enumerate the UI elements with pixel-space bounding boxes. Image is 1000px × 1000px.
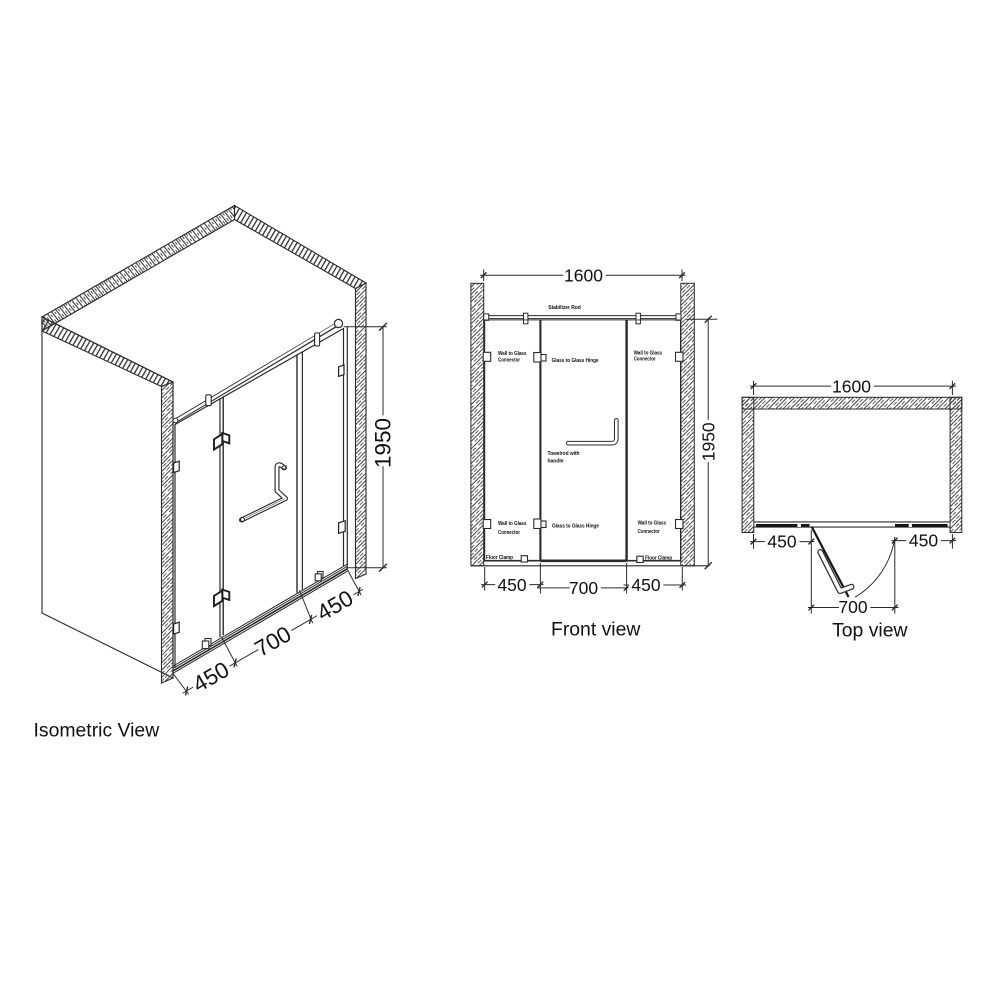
svg-text:Stabilizer Rod: Stabilizer Rod: [548, 305, 581, 311]
svg-text:Isometric View: Isometric View: [34, 720, 161, 742]
svg-text:Connector: Connector: [498, 530, 521, 536]
svg-text:450: 450: [497, 575, 526, 595]
svg-text:Top view: Top view: [832, 620, 908, 642]
svg-text:Floor Clamp: Floor Clamp: [645, 556, 673, 562]
svg-text:1600: 1600: [832, 376, 871, 396]
svg-text:Glass to Glass Hinge: Glass to Glass Hinge: [552, 358, 599, 364]
svg-text:Connector: Connector: [638, 529, 661, 535]
svg-text:Front view: Front view: [551, 619, 641, 641]
svg-text:450: 450: [909, 531, 938, 551]
svg-text:Towelrod with: Towelrod with: [548, 451, 580, 457]
svg-text:1600: 1600: [564, 265, 603, 285]
svg-text:Connector: Connector: [634, 357, 657, 363]
svg-text:Glass to Glass Hinge: Glass to Glass Hinge: [552, 524, 599, 530]
svg-text:450: 450: [767, 532, 796, 552]
svg-text:700: 700: [838, 597, 867, 617]
svg-text:1950: 1950: [699, 422, 719, 461]
svg-text:Wall to Glass: Wall to Glass: [634, 350, 663, 356]
svg-text:Floor Clamp: Floor Clamp: [486, 555, 514, 561]
svg-text:Wall to Glass: Wall to Glass: [498, 351, 527, 357]
svg-text:Connector: Connector: [498, 358, 521, 364]
svg-text:450: 450: [631, 575, 660, 595]
svg-text:Wall to Glass: Wall to Glass: [498, 521, 527, 527]
svg-text:1950: 1950: [371, 418, 396, 468]
svg-text:Wall to Glass: Wall to Glass: [638, 521, 667, 527]
svg-text:700: 700: [569, 578, 598, 598]
svg-text:handle: handle: [548, 458, 564, 464]
